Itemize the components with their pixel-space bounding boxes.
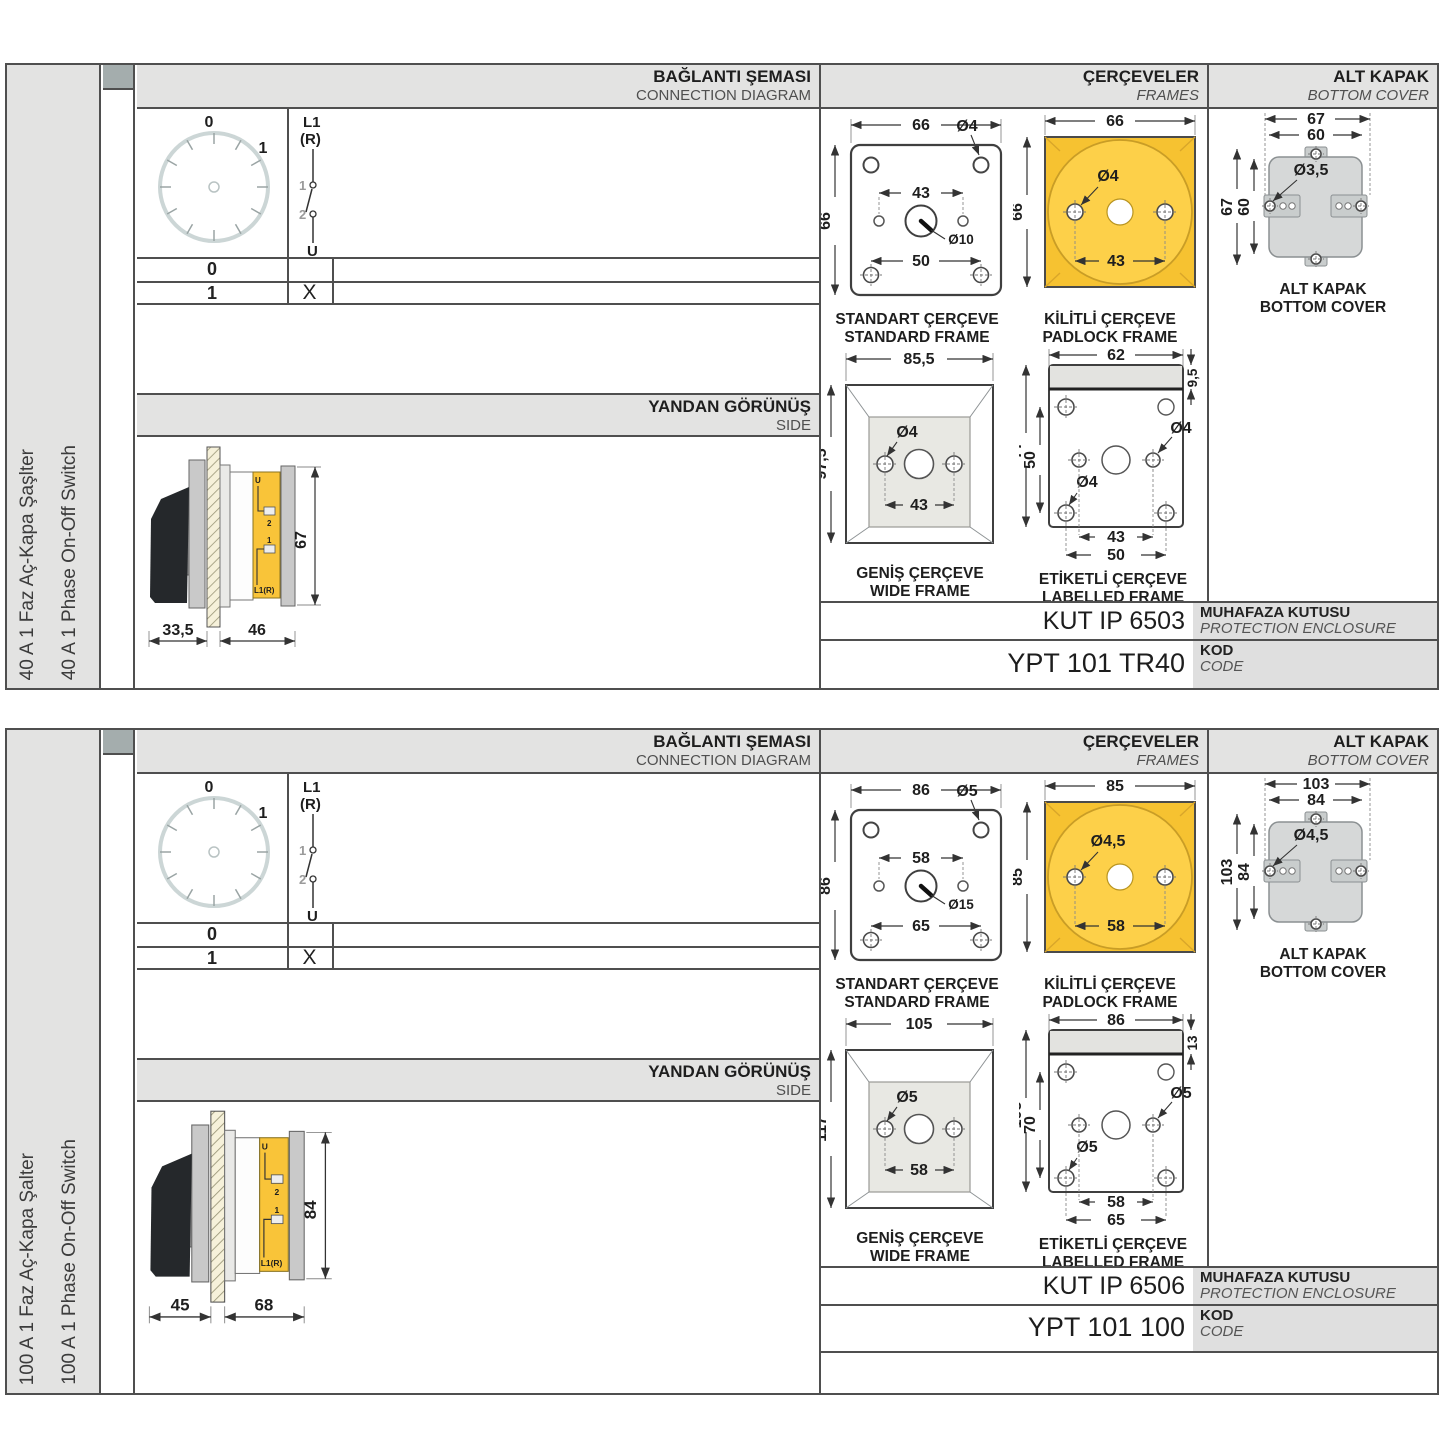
enclosure-label-tr: MUHAFAZA KUTUSU: [1200, 1270, 1437, 1286]
back-plate: [220, 465, 230, 607]
table-line: [332, 257, 334, 305]
wide-frame-caption-tr: GENİŞ ÇERÇEVE: [821, 1230, 1019, 1248]
contact-2-dot: [310, 211, 316, 217]
padlock-width-dim: 85: [1106, 778, 1124, 795]
dial-diagram-svg: 0 1: [139, 776, 289, 922]
wide-frame-svg: 105 117 Ø5 58: [821, 1010, 1019, 1228]
schematic-wires: [306, 814, 313, 908]
cover-header-en: BOTTOM COVER: [1209, 752, 1429, 769]
padlock-frame-svg: 85 85 Ø4,5 58: [1013, 774, 1207, 974]
cover-header-tr: ALT KAPAK: [1209, 67, 1429, 87]
labelled-frame-cell: 86 13 105 70 Ø5 Ø5: [1019, 1010, 1207, 1266]
std-inner-dim: 43: [912, 185, 930, 202]
cover-hole-dim: Ø3,5: [1294, 162, 1329, 179]
std-width-dim: 66: [912, 117, 930, 134]
standard-frame-cell: 66 Ø4 66 43 Ø10 50 STANDART: [821, 109, 1013, 345]
svg-text:46: 46: [248, 622, 266, 639]
enclosure-label: MUHAFAZA KUTUSU PROTECTION ENCLOSURE: [1193, 603, 1437, 639]
wide-frame-cell: 85,5 97,5 Ø4 43 GENİŞ ÇERÇEVE WIDE FRAME: [821, 345, 1019, 601]
labelled-innerv-dim: 50: [1022, 451, 1039, 469]
terminal-u-label: U: [255, 476, 261, 485]
std-hole-dim: Ø5: [956, 783, 977, 800]
bottom-cover-svg: 67 60 67 60 Ø3,5: [1209, 109, 1437, 279]
padlock-frame-caption-tr: KİLİTLİ ÇERÇEVE: [1013, 976, 1207, 994]
side-header-tr: YANDAN GÖRÜNÜŞ: [137, 397, 811, 417]
bottom-cover-caption-en: BOTTOM COVER: [1209, 964, 1437, 982]
svg-text:45: 45: [171, 1296, 190, 1315]
contact-1-dot: [310, 847, 316, 853]
side-view-svg: U 2 1 L1(R) 45 68 84: [143, 1108, 599, 1370]
connection-header-en: CONNECTION DIAGRAM: [137, 752, 811, 769]
schematic-r-label: (R): [300, 131, 321, 148]
labelled-frame-caption-tr: ETİKETLİ ÇERÇEVE: [1019, 571, 1207, 589]
bottom-cover-caption-tr: ALT KAPAK: [1209, 281, 1437, 299]
dim-front-depth: 45: [149, 1296, 211, 1324]
labelled-width-dim: 62: [1107, 347, 1125, 364]
padlock-hole-dim: Ø4: [1097, 168, 1118, 185]
dial-face: [160, 133, 268, 241]
contact-2-label: 2: [299, 872, 306, 887]
product-block-100a: 100 A 1 Faz Aç-Kapa Şalter 100 A 1 Phase…: [5, 728, 1439, 1395]
side-header: YANDAN GÖRÜNÜŞ SIDE: [137, 1058, 819, 1102]
product-name-tr: 100 A 1 Faz Aç-Kapa Şalter: [17, 1153, 39, 1385]
labelled-frame-svg: 62 9,5 77 50 Ø4 Ø4: [1019, 345, 1207, 569]
side-header-tr: YANDAN GÖRÜNÜŞ: [137, 1062, 811, 1082]
frames-header-en: FRAMES: [821, 87, 1199, 104]
terminal-1: [264, 545, 275, 553]
labelled-hole1-dim: Ø5: [1170, 1085, 1191, 1102]
labelled-frame-svg: 86 13 105 70 Ø5 Ø5: [1019, 1010, 1207, 1234]
cover-winner-dim: 84: [1307, 792, 1325, 809]
terminal-2-label: 2: [267, 519, 272, 528]
dial-position-0: 0: [205, 779, 214, 796]
dim-front-depth: 33,5: [149, 622, 207, 647]
labelled-frame-caption-tr: ETİKETLİ ÇERÇEVE: [1019, 1236, 1207, 1254]
standard-frame-cell: 86 Ø5 86 58 Ø15 65 STANDART: [821, 774, 1013, 1010]
wide-inner-dim: 43: [910, 497, 928, 514]
wide-height-dim: 97,5: [821, 448, 830, 479]
padlock-frame-svg: 66 66 Ø4 43: [1013, 109, 1207, 309]
table-line: [287, 109, 289, 305]
contact-1-dot: [310, 182, 316, 188]
std-center-dim: Ø15: [948, 897, 974, 912]
cover-header: ALT KAPAK BOTTOM COVER: [1209, 730, 1437, 774]
wide-width-dim: 85,5: [903, 351, 934, 368]
connection-header: BAĞLANTI ŞEMASI CONNECTION DIAGRAM: [137, 65, 819, 109]
dial-position-1: 1: [259, 805, 268, 822]
labelled-outer-dim: 50: [1107, 547, 1125, 564]
std-bottom-dim: 50: [912, 253, 930, 270]
table-line: [332, 922, 334, 970]
padlock-inner-dim: 58: [1107, 918, 1125, 935]
std-bottom-dim: 65: [912, 918, 930, 935]
cover-wouter-dim: 67: [1307, 111, 1325, 128]
labelled-outer-dim: 65: [1107, 1212, 1125, 1229]
wide-frame-caption-en: WIDE FRAME: [821, 583, 1019, 601]
padlock-frame-cell: 85 85 Ø4,5 58 KİLİTLİ ÇERÇEVE PADLOCK FR…: [1013, 774, 1207, 1010]
wide-hole-dim: Ø4: [896, 424, 917, 441]
schematic-r-label: (R): [300, 796, 321, 813]
switch-schematic-svg: L1 (R) 1 2 U: [291, 776, 411, 922]
cover-hole-dim: Ø4,5: [1294, 827, 1329, 844]
index-strip: [103, 730, 135, 1393]
cover-houter-dim: 103: [1219, 859, 1236, 886]
dial-position-0: 0: [205, 114, 214, 131]
product-label-column: 40 A 1 Faz Aç-Kapa Şaşlter 40 A 1 Phase …: [7, 65, 101, 688]
schematic-u-label: U: [307, 908, 318, 922]
table-contact-mark: X: [287, 281, 332, 303]
labelled-hole2-dim: Ø4: [1076, 474, 1097, 491]
wide-hole-dim: Ø5: [896, 1089, 917, 1106]
std-height-dim: 86: [821, 877, 834, 895]
product-code: YPT 101 100: [821, 1306, 1193, 1351]
terminal-u-label: U: [262, 1141, 268, 1151]
dim-back-depth: 46: [220, 622, 295, 647]
padlock-height-dim: 66: [1013, 203, 1026, 221]
std-height-dim: 66: [821, 212, 834, 230]
panel-wall-hatched: [211, 1111, 225, 1302]
schematic-l1-label: L1: [303, 779, 321, 796]
enclosure-label-en: PROTECTION ENCLOSURE: [1200, 621, 1437, 637]
connection-header-en: CONNECTION DIAGRAM: [137, 87, 811, 104]
index-tab: [103, 65, 133, 90]
dial-diagram-svg: 0 1: [139, 111, 289, 257]
enclosure-label-en: PROTECTION ENCLOSURE: [1200, 1286, 1437, 1302]
connection-header-tr: BAĞLANTI ŞEMASI: [137, 67, 811, 87]
product-name-tr: 40 A 1 Faz Aç-Kapa Şaşlter: [17, 449, 39, 680]
frames-header-tr: ÇERÇEVELER: [821, 732, 1199, 752]
code-label-en: CODE: [1200, 659, 1437, 675]
enclosure-label-tr: MUHAFAZA KUTUSU: [1200, 605, 1437, 621]
svg-text:68: 68: [254, 1296, 273, 1315]
std-center-dim: Ø10: [948, 232, 974, 247]
table-row-position-0: 0: [137, 924, 287, 946]
frames-header: ÇERÇEVELER FRAMES: [821, 65, 1207, 109]
labelled-frame-cell: 62 9,5 77 50 Ø4 Ø4: [1019, 345, 1207, 601]
bottom-cover-svg: 103 84 103 84 Ø4,5: [1209, 774, 1437, 944]
cover-winner-dim: 60: [1307, 127, 1325, 144]
side-header-en: SIDE: [137, 417, 811, 434]
labelled-hole2-dim: Ø5: [1076, 1139, 1097, 1156]
standard-frame-svg: 86 Ø5 86 58 Ø15 65: [821, 774, 1013, 974]
dial-face: [160, 798, 268, 906]
terminal-2: [271, 1175, 283, 1183]
wide-frame-caption-en: WIDE FRAME: [821, 1248, 1019, 1266]
labelled-inner-dim: 58: [1107, 1194, 1125, 1211]
labelled-hole1-dim: Ø4: [1170, 420, 1191, 437]
std-hole-dim: Ø4: [956, 118, 977, 135]
panel-wall-hatched: [207, 447, 220, 627]
index-strip: [103, 65, 135, 688]
index-tab: [103, 730, 133, 755]
dim-back-depth: 68: [225, 1296, 305, 1324]
table-row-position-0: 0: [137, 259, 287, 281]
contact-1-label: 1: [299, 178, 306, 193]
dial-position-1: 1: [259, 140, 268, 157]
cover-header-tr: ALT KAPAK: [1209, 732, 1429, 752]
padlock-hole-dim: Ø4,5: [1091, 833, 1126, 850]
svg-text:33,5: 33,5: [162, 622, 193, 639]
frames-header-tr: ÇERÇEVELER: [821, 67, 1199, 87]
std-inner-dim: 58: [912, 850, 930, 867]
code-label: KOD CODE: [1193, 641, 1437, 688]
code-label: KOD CODE: [1193, 1306, 1437, 1351]
labelled-strip-dim: 9,5: [1185, 368, 1200, 387]
terminal-l1r-label: L1(R): [261, 1258, 283, 1268]
standard-frame-caption-tr: STANDART ÇERÇEVE: [821, 311, 1013, 329]
switch-body: [235, 1138, 259, 1274]
padlock-frame-caption-tr: KİLİTLİ ÇERÇEVE: [1013, 311, 1207, 329]
bottom-cover-cell: 103 84 103 84 Ø4,5 ALT KAPAK: [1209, 774, 1437, 1004]
table-line: [287, 774, 289, 970]
terminal-2-label: 2: [274, 1187, 279, 1197]
terminal-2: [264, 507, 275, 515]
padlock-height-dim: 85: [1013, 868, 1026, 886]
labelled-width-dim: 86: [1107, 1012, 1125, 1029]
product-block-40a: 40 A 1 Faz Aç-Kapa Şaşlter 40 A 1 Phase …: [5, 63, 1439, 690]
product-code: YPT 101 TR40: [821, 641, 1193, 688]
standard-frame-caption-tr: STANDART ÇERÇEVE: [821, 976, 1013, 994]
schematic-u-label: U: [307, 243, 318, 257]
std-width-dim: 86: [912, 782, 930, 799]
cover-header: ALT KAPAK BOTTOM COVER: [1209, 65, 1437, 109]
cover-wouter-dim: 103: [1303, 776, 1330, 793]
enclosure-code: KUT IP 6506: [821, 1268, 1193, 1304]
table-line: [137, 968, 819, 970]
back-plate: [225, 1130, 236, 1281]
wide-frame-cell: 105 117 Ø5 58 GENİŞ ÇERÇEVE WIDE FRAME: [821, 1010, 1019, 1266]
side-header: YANDAN GÖRÜNÜŞ SIDE: [137, 393, 819, 437]
wide-frame-svg: 85,5 97,5 Ø4 43: [821, 345, 1019, 563]
table-contact-mark: X: [287, 946, 332, 968]
padlock-width-dim: 66: [1106, 113, 1124, 130]
table-row-position-1: 1: [137, 283, 287, 303]
svg-text:84: 84: [301, 1200, 320, 1219]
wide-width-dim: 105: [906, 1016, 933, 1033]
cover-houter-dim: 67: [1219, 198, 1236, 216]
contact-2-dot: [310, 876, 316, 882]
table-line: [137, 303, 819, 305]
schematic-wires: [306, 149, 313, 243]
product-name-en: 40 A 1 Phase On-Off Switch: [59, 445, 81, 680]
enclosure-label: MUHAFAZA KUTUSU PROTECTION ENCLOSURE: [1193, 1268, 1437, 1304]
code-label-tr: KOD: [1200, 643, 1437, 659]
switch-schematic-svg: L1 (R) 1 2 U: [291, 111, 411, 257]
side-header-en: SIDE: [137, 1082, 811, 1099]
wide-inner-dim: 58: [910, 1162, 928, 1179]
product-label-column: 100 A 1 Faz Aç-Kapa Şalter 100 A 1 Phase…: [7, 730, 101, 1393]
wide-frame-caption-tr: GENİŞ ÇERÇEVE: [821, 565, 1019, 583]
terminal-1-label: 1: [274, 1205, 279, 1215]
product-name-en: 100 A 1 Phase On-Off Switch: [59, 1139, 81, 1385]
bottom-cover-caption-tr: ALT KAPAK: [1209, 946, 1437, 964]
padlock-inner-dim: 43: [1107, 253, 1125, 270]
row-line: [819, 1351, 1437, 1353]
dim-height: 67: [293, 467, 321, 605]
terminal-1: [271, 1215, 283, 1223]
code-label-en: CODE: [1200, 1324, 1437, 1340]
padlock-frame-cell: 66 66 Ø4 43 KİLİTLİ ÇERÇEVE PADLOCK FRAM…: [1013, 109, 1207, 345]
frames-header: ÇERÇEVELER FRAMES: [821, 730, 1207, 774]
terminal-l1r-label: L1(R): [254, 586, 275, 595]
bottom-cover-cell: 67 60 67 60 Ø3,5 ALT KAPAK B: [1209, 109, 1437, 339]
cover-header-en: BOTTOM COVER: [1209, 87, 1429, 104]
dim-height: 84: [301, 1132, 332, 1278]
schematic-l1-label: L1: [303, 114, 321, 131]
labelled-innerv-dim: 70: [1022, 1116, 1039, 1134]
code-label-tr: KOD: [1200, 1308, 1437, 1324]
frames-header-en: FRAMES: [821, 752, 1199, 769]
contact-1-label: 1: [299, 843, 306, 858]
handle: [150, 487, 189, 603]
handle: [150, 1154, 191, 1277]
switch-body: [230, 472, 253, 600]
mount-plate: [189, 460, 205, 608]
table-row-position-1: 1: [137, 948, 287, 968]
terminal-1-label: 1: [267, 536, 272, 545]
standard-frame-svg: 66 Ø4 66 43 Ø10 50: [821, 109, 1013, 309]
connection-header-tr: BAĞLANTI ŞEMASI: [137, 732, 811, 752]
labelled-inner-dim: 43: [1107, 529, 1125, 546]
svg-text:67: 67: [293, 531, 310, 549]
bottom-cover-caption-en: BOTTOM COVER: [1209, 299, 1437, 317]
side-view-svg: U 2 1 L1(R) 33,5 46 67: [143, 445, 573, 690]
enclosure-code: KUT IP 6503: [821, 603, 1193, 639]
cover-hinner-dim: 60: [1236, 198, 1253, 216]
labelled-strip-dim: 13: [1185, 1035, 1200, 1051]
wide-height-dim: 117: [821, 1116, 830, 1142]
cover-hinner-dim: 84: [1236, 863, 1253, 881]
contact-2-label: 2: [299, 207, 306, 222]
mount-plate: [192, 1125, 209, 1282]
connection-header: BAĞLANTI ŞEMASI CONNECTION DIAGRAM: [137, 730, 819, 774]
